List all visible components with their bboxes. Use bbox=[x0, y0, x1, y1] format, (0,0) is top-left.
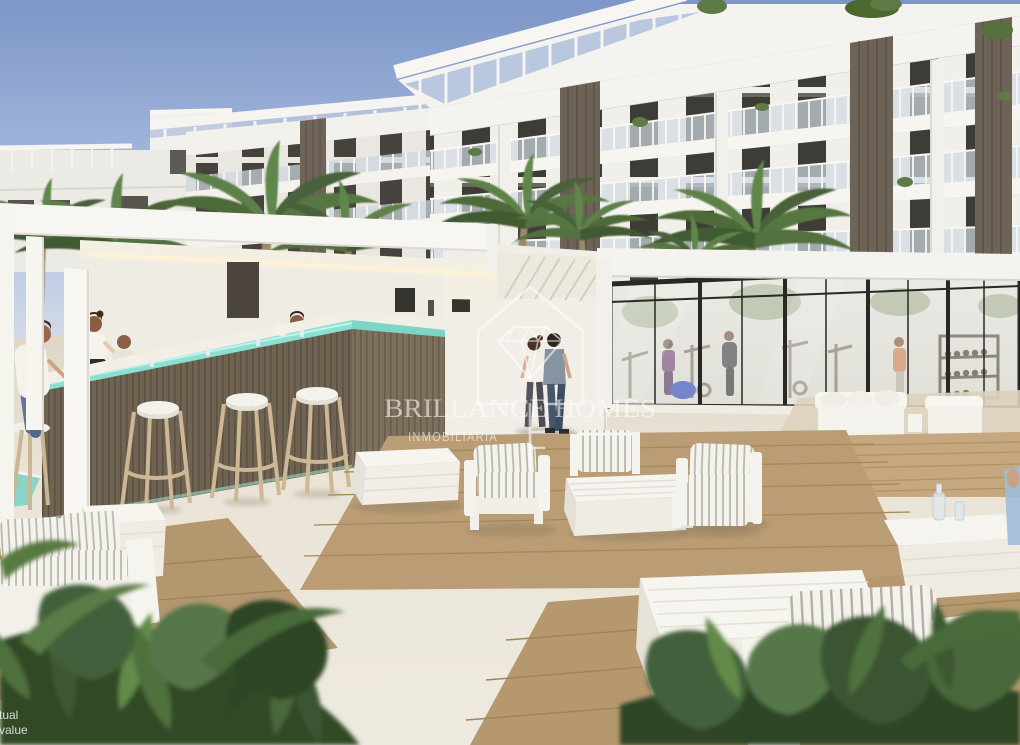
lounge-set-center bbox=[300, 430, 918, 590]
render-photo: BRILLANCE HOMES INMOBILIARIA ctual l val… bbox=[0, 0, 1020, 745]
watermark-subtitle: INMOBILIARIA bbox=[408, 429, 498, 444]
bar-doorway bbox=[227, 262, 259, 318]
svg-text:ctual: ctual bbox=[0, 708, 18, 722]
pergola-column bbox=[64, 268, 90, 540]
lounge-bench bbox=[352, 448, 460, 505]
pergola-column bbox=[26, 236, 44, 430]
watermark-title: BRILLANCE HOMES bbox=[384, 394, 656, 423]
lounge-armchair bbox=[570, 430, 640, 476]
render-scene: BRILLANCE HOMES INMOBILIARIA ctual l val… bbox=[0, 0, 1020, 745]
wall-window bbox=[395, 288, 415, 312]
svg-text:l value: l value bbox=[0, 723, 28, 737]
coffee-table bbox=[564, 474, 688, 536]
